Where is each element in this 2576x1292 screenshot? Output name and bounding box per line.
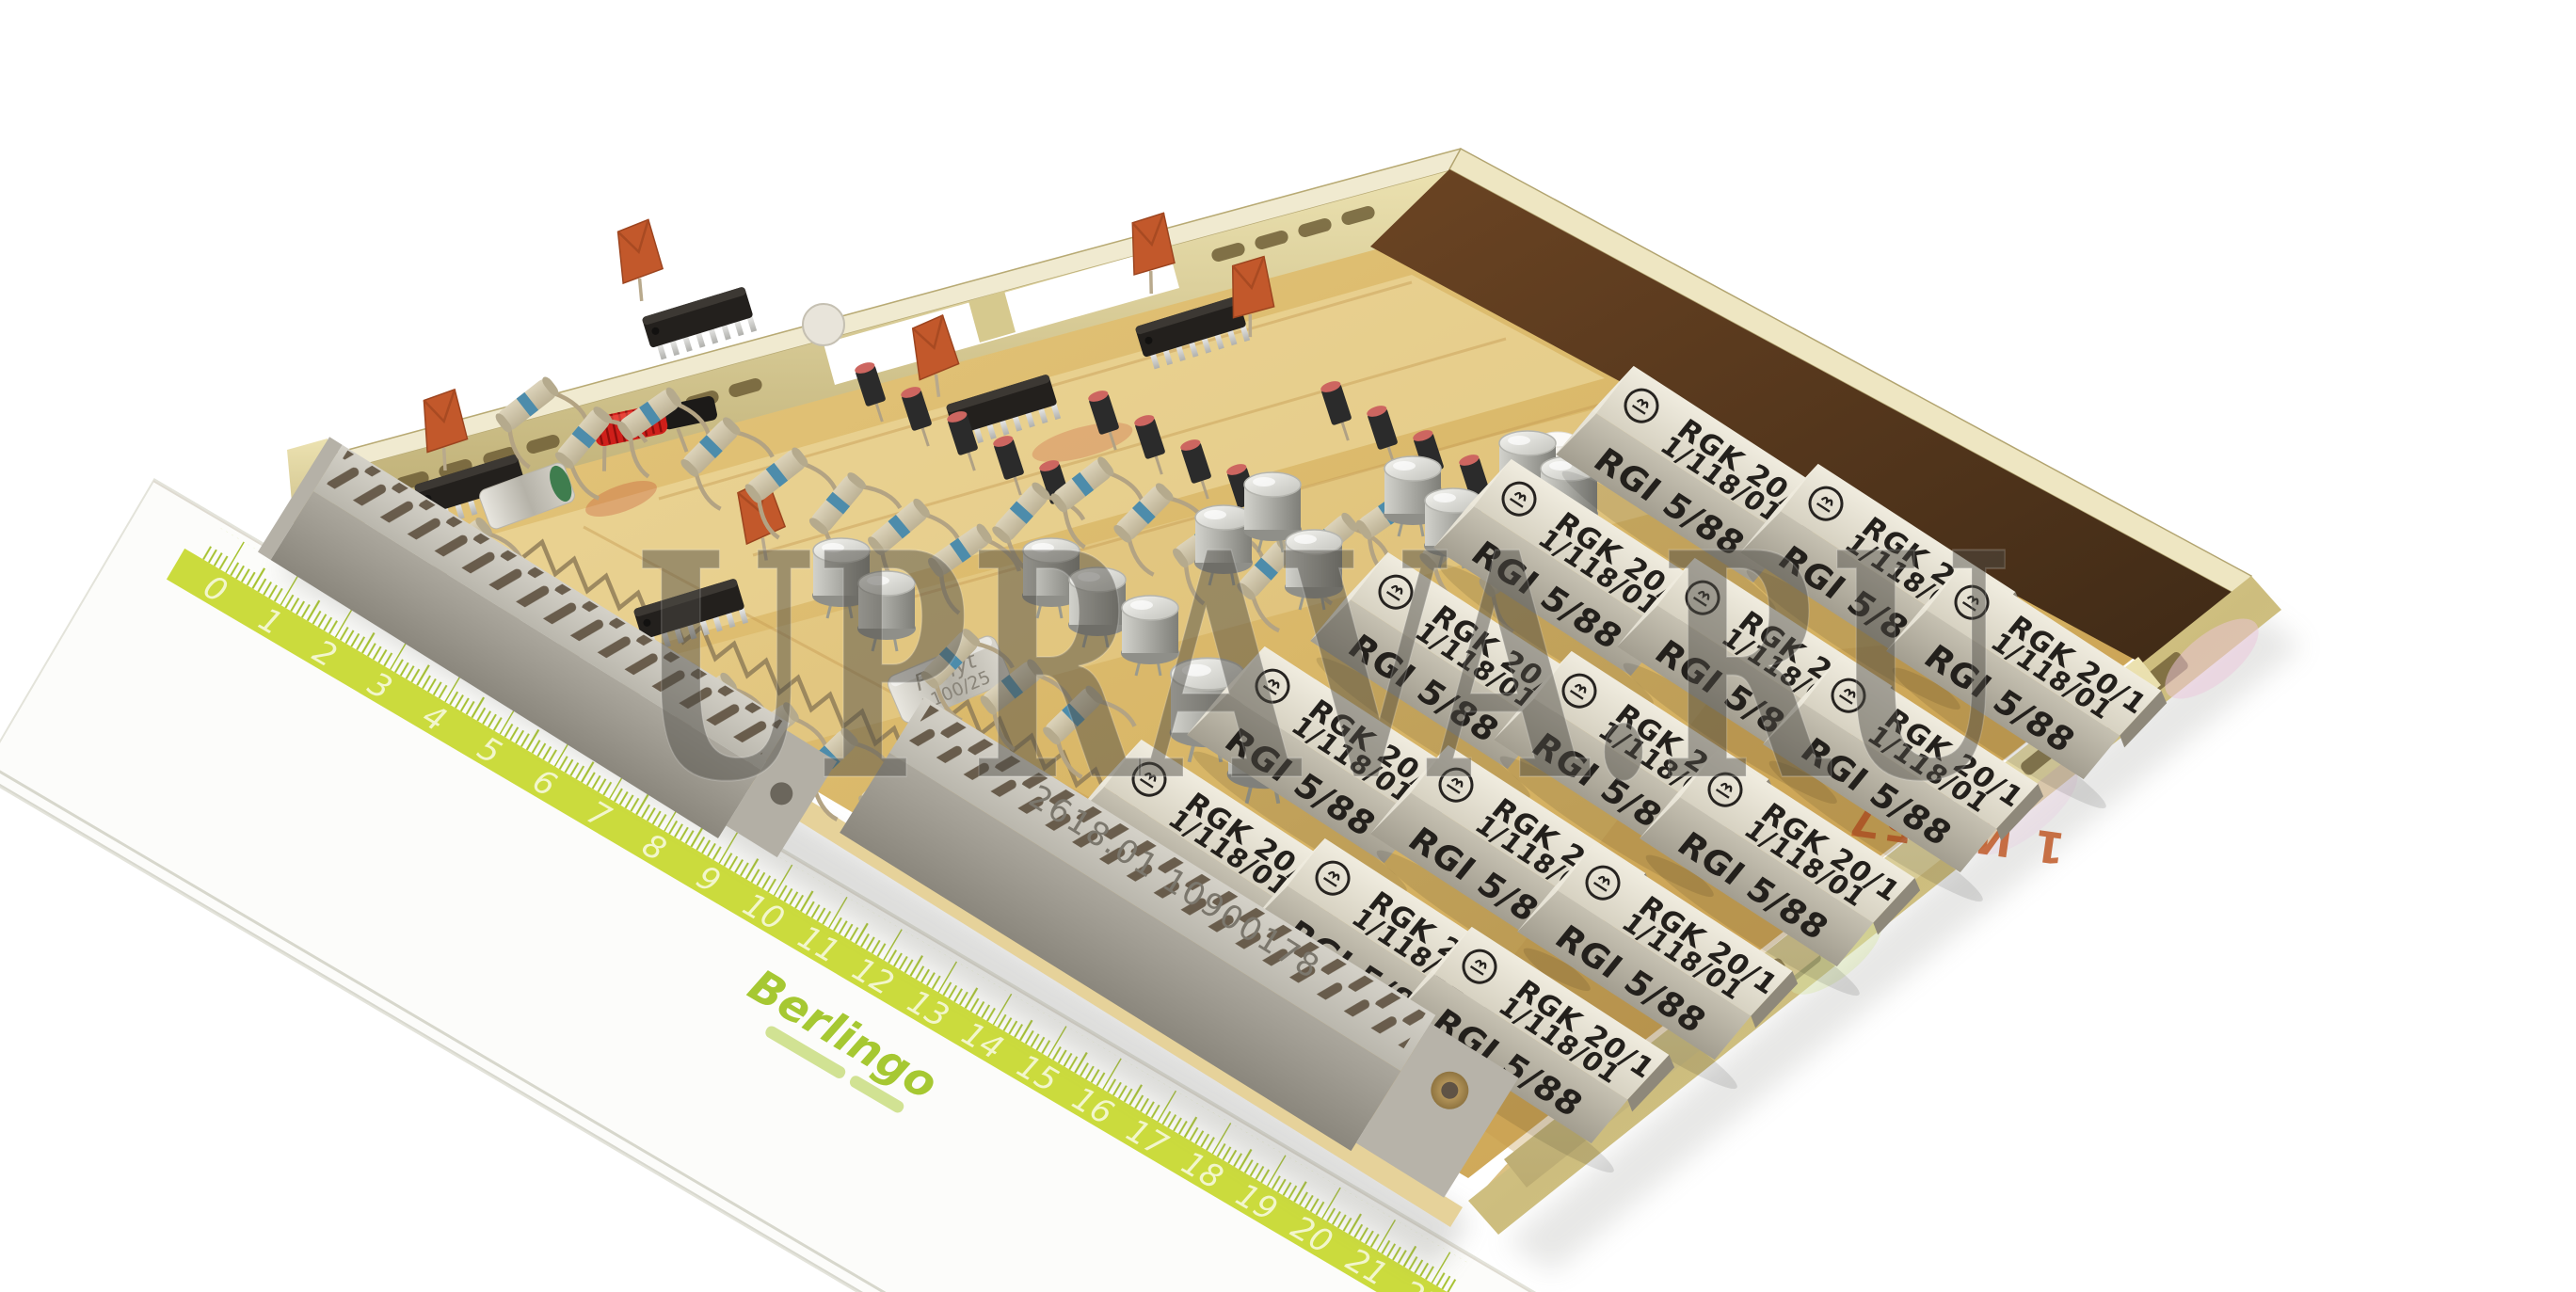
ceramic-disc [803,304,844,345]
photo-stage: RGK 20/1 1/118/01 RGI 5/88 [0,0,2576,1292]
photo-canvas: RGK 20/1 1/118/01 RGI 5/88 [0,0,2576,1292]
watermark-text: UPRAVA.RU [635,485,2009,850]
